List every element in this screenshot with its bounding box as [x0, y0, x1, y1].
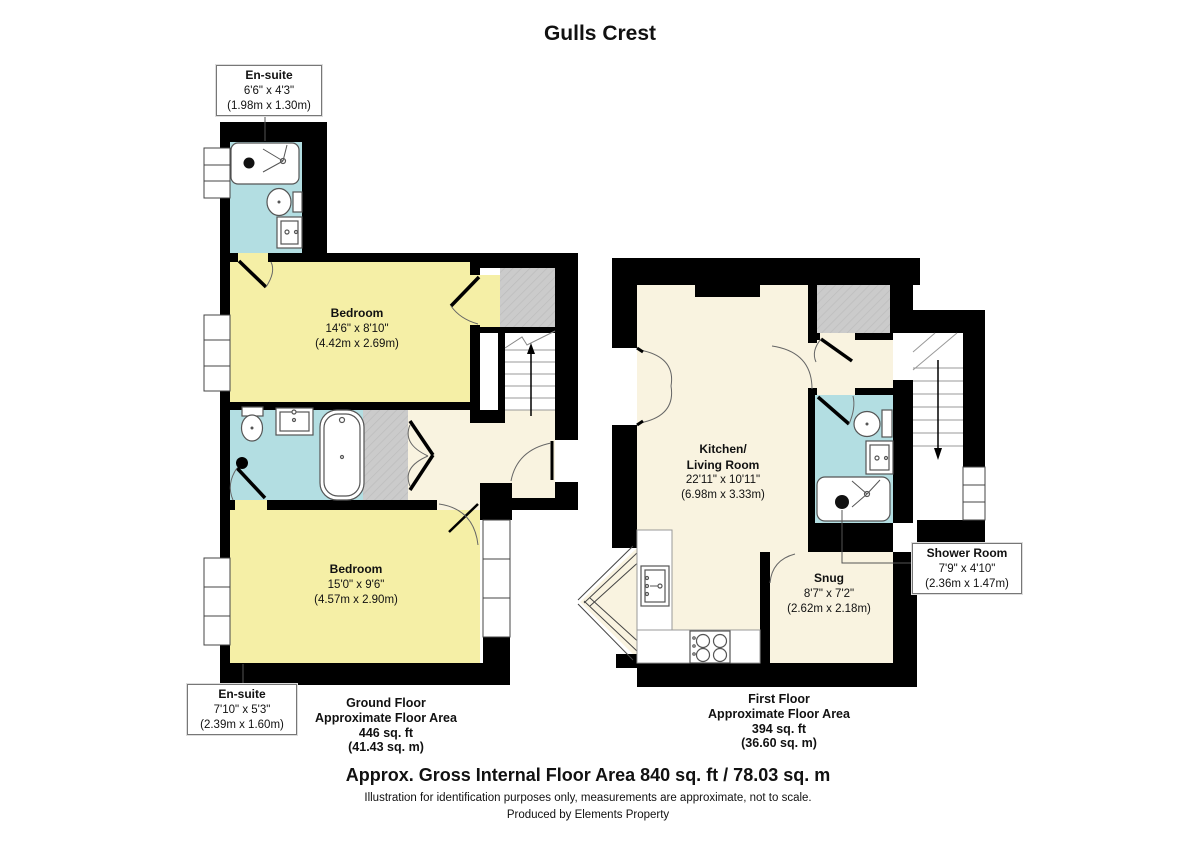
room-name: Kitchen/ — [681, 442, 765, 458]
total-floor-area: Approx. Gross Internal Floor Area 840 sq… — [346, 765, 830, 786]
floorplan-graphics — [0, 0, 1200, 847]
bedroom-top-label: Bedroom 14'6" x 8'10" (4.42m x 2.69m) — [315, 306, 399, 351]
hall-cupboard — [363, 410, 408, 500]
door-knob — [236, 457, 248, 469]
door-opening — [238, 253, 268, 262]
caption-line: First Floor — [708, 692, 850, 707]
landing-floor — [808, 333, 893, 395]
storage-area — [817, 285, 890, 333]
caption-line: 446 sq. ft — [315, 726, 457, 741]
snug-passage-floor — [760, 530, 808, 552]
sink-icon — [277, 217, 302, 248]
window — [963, 467, 985, 520]
room-dims-ft: 8'7" x 7'2" — [787, 587, 871, 602]
room-dims-m: (4.57m x 2.90m) — [314, 593, 398, 608]
room-dims-m: (1.98m x 1.30m) — [221, 99, 317, 114]
room-name: Snug — [787, 571, 871, 587]
shower-tray-icon — [231, 143, 299, 184]
window — [204, 558, 230, 645]
shower-room-label: Shower Room 7'9" x 4'10" (2.36m x 1.47m) — [912, 543, 1022, 594]
room-dims-ft: 6'6" x 4'3" — [221, 84, 317, 99]
door-opening — [235, 500, 267, 510]
door-opening — [815, 388, 855, 395]
room-name: Bedroom — [314, 562, 398, 578]
room-dims-ft: 14'6" x 8'10" — [315, 322, 399, 337]
ground-floor-caption: Ground Floor Approximate Floor Area 446 … — [315, 696, 457, 755]
room-name: En-suite — [192, 687, 292, 703]
room-dims-ft: 15'0" x 9'6" — [314, 578, 398, 593]
door-opening — [808, 343, 817, 390]
window — [204, 315, 230, 391]
room-name: Living Room — [681, 458, 765, 474]
room-dims-m: (2.62m x 2.18m) — [787, 602, 871, 617]
bay-window-floor — [580, 548, 637, 658]
room-dims-m: (2.36m x 1.47m) — [917, 577, 1017, 592]
bedroom-bottom-label: Bedroom 15'0" x 9'6" (4.57m x 2.90m) — [314, 562, 398, 607]
caption-line: (41.43 sq. m) — [315, 740, 457, 755]
window — [483, 520, 510, 637]
ensuite-bottom-label: En-suite 7'10" x 5'3" (2.39m x 1.60m) — [187, 684, 297, 735]
first-floor-plan — [578, 258, 985, 687]
door-opening — [820, 333, 855, 340]
bathtub-icon — [320, 410, 364, 500]
toilet-icon — [242, 407, 264, 441]
floorplan-page: Gulls Crest En-suite 6'6" x 4'3" (1.98m … — [0, 0, 1200, 847]
sink-icon — [866, 441, 893, 474]
page-title: Gulls Crest — [544, 22, 656, 46]
toilet-icon — [267, 189, 302, 216]
caption-line: Approximate Floor Area — [708, 707, 850, 722]
room-name: Shower Room — [917, 546, 1017, 562]
room-dims-m: (6.98m x 3.33m) — [681, 488, 765, 503]
window — [204, 148, 230, 198]
caption-line: Ground Floor — [315, 696, 457, 711]
caption-line: 394 sq. ft — [708, 722, 850, 737]
toilet-icon — [854, 410, 892, 437]
room-dims-m: (4.42m x 2.69m) — [315, 337, 399, 352]
shower-tray-icon — [817, 477, 890, 521]
disclaimer-text: Illustration for identification purposes… — [364, 792, 811, 804]
sink-icon — [276, 408, 313, 435]
kitchen-sink-icon — [641, 566, 669, 606]
room-name: En-suite — [221, 68, 317, 84]
kitchen-living-label: Kitchen/ Living Room 22'11" x 10'11" (6.… — [681, 442, 765, 503]
room-dims-ft: 22'11" x 10'11" — [681, 473, 765, 488]
caption-line: (36.60 sq. m) — [708, 736, 850, 751]
room-name: Bedroom — [315, 306, 399, 322]
room-dims-m: (2.39m x 1.60m) — [192, 718, 292, 733]
room-dims-ft: 7'9" x 4'10" — [917, 562, 1017, 577]
producer-credit: Produced by Elements Property — [507, 809, 669, 821]
hob-icon — [690, 631, 730, 663]
understairs-storage — [500, 268, 555, 327]
room-dims-ft: 7'10" x 5'3" — [192, 703, 292, 718]
caption-line: Approximate Floor Area — [315, 711, 457, 726]
snug-label: Snug 8'7" x 7'2" (2.62m x 2.18m) — [787, 571, 871, 616]
first-floor-caption: First Floor Approximate Floor Area 394 s… — [708, 692, 850, 751]
ensuite-top-label: En-suite 6'6" x 4'3" (1.98m x 1.30m) — [216, 65, 322, 116]
